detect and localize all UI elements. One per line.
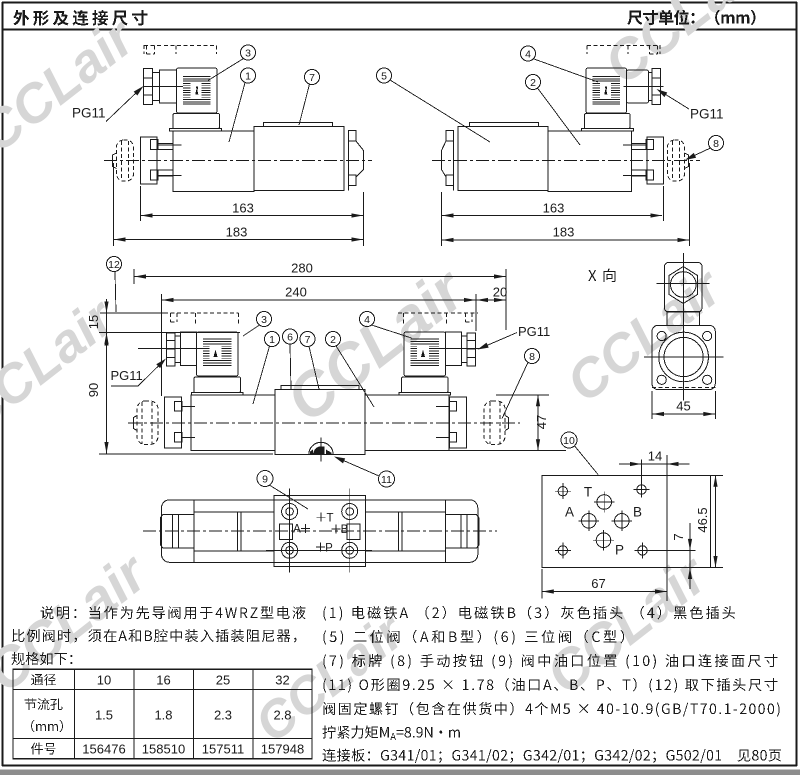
- svg-text:2: 2: [530, 77, 536, 89]
- svg-text:3: 3: [245, 47, 251, 59]
- svg-text:240: 240: [285, 285, 307, 300]
- svg-text:A: A: [565, 505, 574, 520]
- svg-text:3: 3: [261, 314, 267, 326]
- svg-text:163: 163: [232, 201, 254, 216]
- svg-text:32: 32: [275, 673, 289, 688]
- svg-text:183: 183: [553, 225, 575, 240]
- svg-text:163: 163: [543, 201, 565, 216]
- svg-text:158510: 158510: [142, 742, 185, 757]
- svg-text:45: 45: [676, 399, 690, 414]
- svg-text:1: 1: [245, 70, 251, 82]
- svg-text:157948: 157948: [261, 742, 304, 757]
- svg-text:183: 183: [226, 225, 248, 240]
- svg-text:7: 7: [309, 72, 315, 84]
- svg-text:8: 8: [529, 351, 535, 363]
- svg-text:4: 4: [525, 48, 531, 60]
- svg-text:10: 10: [97, 673, 111, 688]
- svg-text:4: 4: [364, 314, 370, 326]
- svg-text:12: 12: [108, 259, 120, 271]
- svg-text:25: 25: [216, 673, 230, 688]
- svg-text:2.8: 2.8: [273, 708, 291, 723]
- svg-text:11: 11: [381, 474, 392, 486]
- svg-text:10: 10: [563, 435, 575, 447]
- svg-text:PG11: PG11: [72, 106, 106, 121]
- svg-text:16: 16: [156, 673, 170, 688]
- svg-text:1.8: 1.8: [154, 708, 172, 723]
- svg-text:14: 14: [648, 449, 662, 464]
- svg-text:P: P: [325, 543, 333, 555]
- svg-text:P: P: [615, 543, 624, 558]
- svg-text:15: 15: [86, 315, 101, 329]
- svg-text:1: 1: [269, 334, 275, 346]
- svg-text:7: 7: [305, 334, 311, 346]
- svg-text:PG11: PG11: [111, 368, 143, 383]
- svg-text:T: T: [584, 485, 592, 500]
- svg-text:1.5: 1.5: [95, 708, 113, 723]
- svg-text:B: B: [341, 524, 349, 536]
- svg-text:PG11: PG11: [518, 324, 550, 339]
- svg-text:46.5: 46.5: [695, 507, 710, 532]
- svg-text:T: T: [326, 513, 333, 525]
- svg-text:6: 6: [287, 331, 293, 343]
- svg-text:PG11: PG11: [690, 107, 724, 122]
- svg-text:280: 280: [291, 261, 313, 276]
- svg-text:156476: 156476: [82, 742, 125, 757]
- svg-text:2.3: 2.3: [214, 708, 232, 723]
- svg-text:67: 67: [591, 576, 605, 591]
- svg-text:B: B: [633, 505, 642, 520]
- svg-text:90: 90: [86, 383, 101, 397]
- svg-text:8: 8: [713, 138, 719, 150]
- svg-text:2: 2: [330, 334, 336, 346]
- svg-text:7: 7: [671, 533, 686, 540]
- svg-text:47: 47: [534, 415, 549, 429]
- svg-text:9: 9: [262, 473, 268, 485]
- svg-text:157511: 157511: [202, 742, 244, 757]
- svg-text:A: A: [293, 524, 301, 536]
- svg-text:20: 20: [493, 285, 507, 300]
- svg-text:5: 5: [381, 70, 387, 82]
